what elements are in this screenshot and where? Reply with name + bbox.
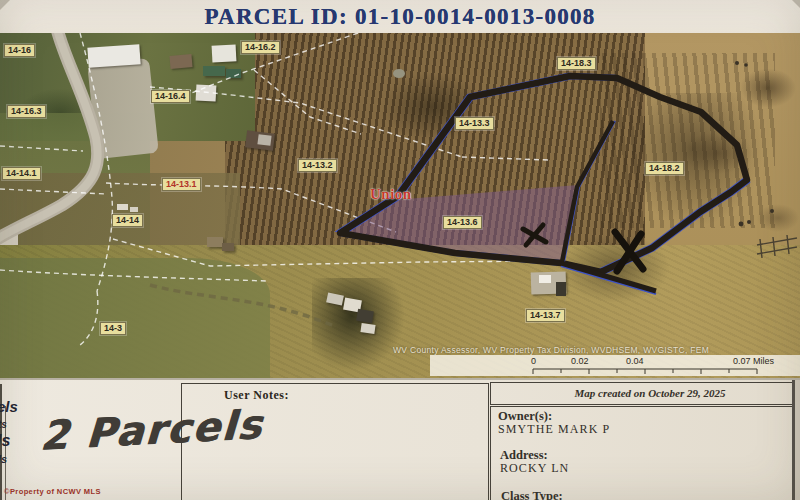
parcel-label: 14-16.4 bbox=[151, 90, 190, 103]
aerial-parcel-map: 14-16 14-16.2 14-16.4 14-16.3 14-14.1 14… bbox=[0, 33, 800, 378]
parcel-label-highlighted: 14-13.6 bbox=[443, 216, 482, 229]
scale-bar-ticks bbox=[430, 355, 800, 376]
map-created-text: Map created on October 29, 2025 bbox=[491, 383, 795, 403]
info-footer-panel: User Notes: Map created on October 29, 2… bbox=[0, 378, 800, 500]
address-value: ROCKY LN bbox=[500, 461, 569, 476]
parcel-label: 14-14 bbox=[112, 214, 143, 227]
owner-info-box: Owner(s): SMYTHE MARK P Address: ROCKY L… bbox=[490, 406, 796, 500]
parcel-label-red: 14-13.1 bbox=[162, 178, 201, 191]
parcel-label: 14-16.3 bbox=[7, 105, 46, 118]
parcel-label: 14-18.2 bbox=[645, 162, 684, 175]
parcel-label: 14-16 bbox=[4, 44, 35, 57]
cut-off-text-fragment: ts bbox=[0, 419, 7, 430]
parcel-label: 14-13.7 bbox=[526, 309, 565, 322]
map-attribution: WV County Assessor, WV Property Tax Divi… bbox=[393, 345, 709, 355]
page-edge-right bbox=[792, 380, 795, 500]
header-band: PARCEL ID: 01-10-0014-0013-0008 bbox=[0, 0, 800, 33]
owner-value: SMYTHE MARK P bbox=[498, 422, 610, 437]
parcel-label: 14-13.3 bbox=[455, 117, 494, 130]
cut-off-text-fragment: ls bbox=[0, 432, 10, 450]
parcel-label: 14-16.2 bbox=[241, 41, 280, 54]
parcel-id-title: PARCEL ID: 01-10-0014-0013-0008 bbox=[0, 0, 800, 33]
map-created-box: Map created on October 29, 2025 bbox=[490, 382, 796, 405]
parcel-label: 14-3 bbox=[100, 322, 126, 335]
parcel-label: 14-14.1 bbox=[2, 167, 41, 180]
fence-grid bbox=[757, 235, 797, 258]
parcel-map-page: PARCEL ID: 01-10-0014-0013-0008 bbox=[0, 0, 800, 500]
photo-corner bbox=[792, 0, 800, 8]
parcel-label: 14-18.3 bbox=[557, 57, 596, 70]
livestock-dots bbox=[735, 61, 774, 226]
cut-off-text-fragment: ls bbox=[0, 453, 7, 465]
cut-off-text-fragment: els bbox=[0, 398, 18, 415]
selected-parcel-boundary bbox=[338, 74, 749, 294]
copyright-text: ©Property of NCWV MLS bbox=[4, 487, 101, 496]
class-type-label: Class Type: bbox=[501, 489, 563, 500]
page-edge-right-fill bbox=[795, 380, 800, 500]
parcel-label: 14-13.2 bbox=[298, 159, 337, 172]
driveway bbox=[150, 285, 334, 326]
scale-bar: 0 0.02 0.04 0.07 Miles bbox=[430, 355, 800, 376]
district-label-union: Union bbox=[370, 186, 412, 203]
photo-corner bbox=[0, 0, 10, 10]
